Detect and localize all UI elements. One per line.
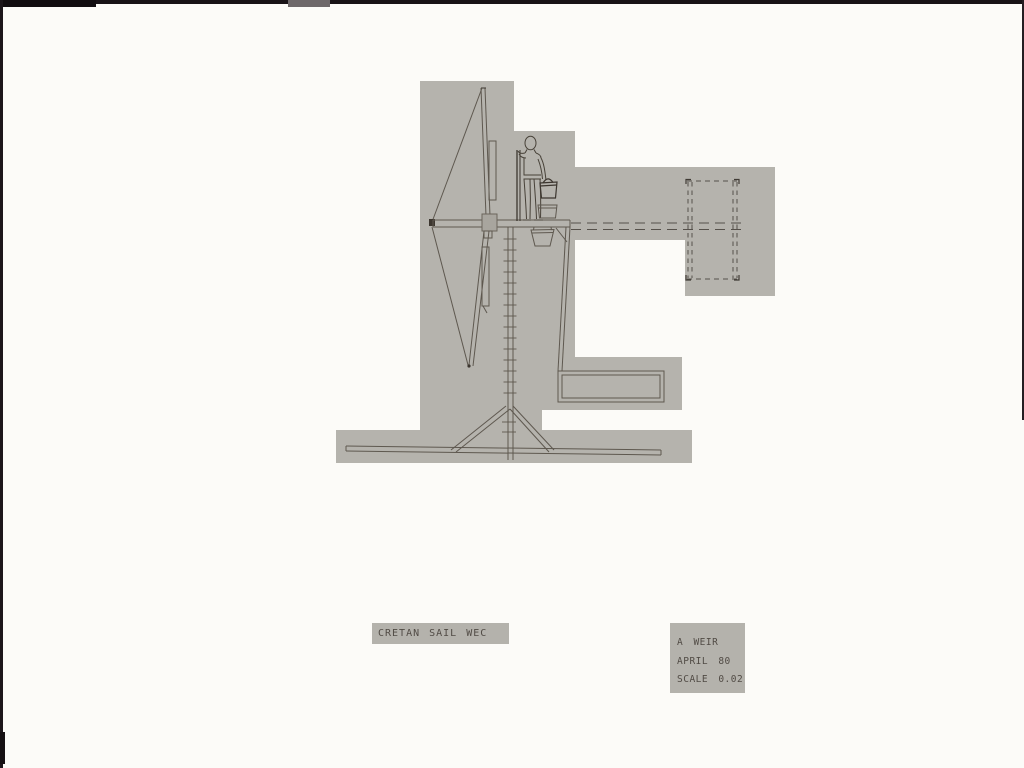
photographed-drawing-page: CRETAN SAIL WEC A WEIR APRIL 80 SCALE 0.… — [0, 0, 1024, 768]
paper-patches — [336, 81, 775, 463]
lower-tip-joint — [467, 364, 470, 367]
author-line: A WEIR — [677, 634, 745, 653]
title-word: WEC — [466, 628, 487, 639]
technical-drawing — [0, 0, 1024, 768]
date-line: APRIL 80 — [677, 653, 745, 672]
drawing-title-block: CRETAN SAIL WEC — [372, 623, 509, 644]
title-word: SAIL — [429, 628, 457, 639]
drawing-info-block: A WEIR APRIL 80 SCALE 0.02 — [670, 623, 745, 693]
title-word: CRETAN — [378, 628, 420, 639]
scale-line: SCALE 0.02 — [677, 671, 745, 690]
